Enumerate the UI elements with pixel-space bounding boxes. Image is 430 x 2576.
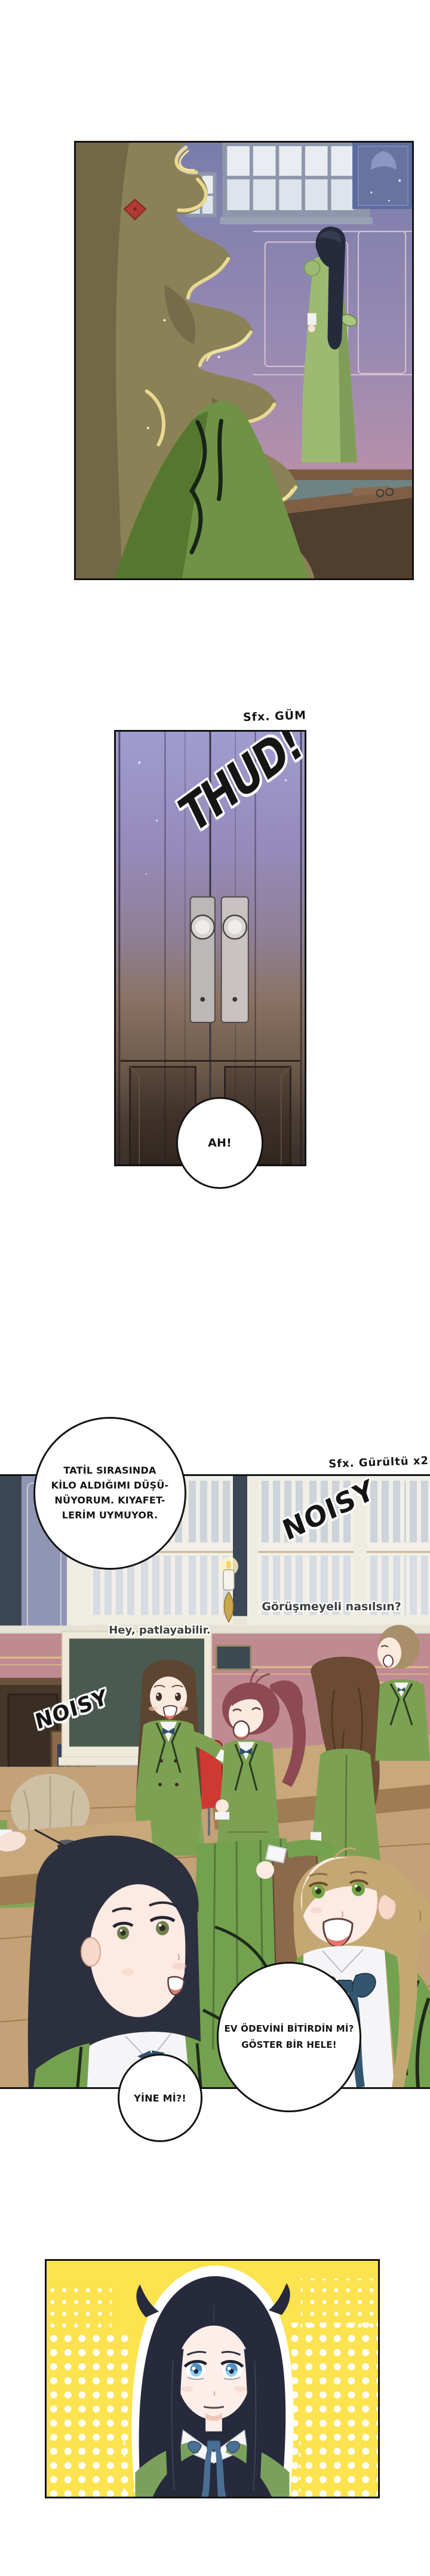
small-wall-board bbox=[216, 1646, 251, 1669]
speech-bubble-yine: YİNE Mİ?! bbox=[118, 2054, 202, 2142]
webtoon-page: Sfx. GÜM bbox=[0, 0, 430, 2576]
sfx-gum-label: Sfx. GÜM bbox=[217, 708, 307, 725]
room-scene-art bbox=[76, 143, 412, 578]
portrait-art bbox=[47, 2261, 378, 2497]
panel-room-scene bbox=[74, 141, 414, 580]
blue-decor-panel bbox=[352, 143, 412, 209]
panel-classroom: NOISY Görüşmeyeli nasılsın? Hey, patlaya… bbox=[0, 1474, 430, 2089]
speech-bubble-odev: EV ÖDEVİNİ BİTİRDİN Mİ? GÖSTER BİR HELE! bbox=[217, 1962, 361, 2112]
speech-bubble-tatil: TATİL SIRASINDA KİLO ALDIĞIMI DÜŞÜ- NÜYO… bbox=[33, 1417, 186, 1570]
bubble-text: AH! bbox=[208, 1136, 232, 1150]
sfx-hey-patlayabilir: Hey, patlayabilir. bbox=[96, 1624, 224, 1637]
bubble-text-line: GÖSTER BİR HELE! bbox=[241, 2037, 337, 2053]
speech-bubble-ah: AH! bbox=[176, 1097, 263, 1189]
bubble-text-line: KİLO ALDIĞIMI DÜŞÜ- bbox=[51, 1478, 169, 1493]
classroom-art bbox=[0, 1476, 430, 2087]
sfx-gorusmeyeli: Görüşmeyeli nasılsın? bbox=[257, 1600, 406, 1613]
bubble-text-line: NÜYORUM. KIYAFET- bbox=[54, 1493, 165, 1508]
panel-portrait bbox=[45, 2259, 380, 2498]
bubble-text-line: EV ÖDEVİNİ BİTİRDİN Mİ? bbox=[224, 2021, 354, 2037]
sfx-gurultu-label: Sfx. Gürültü x2 bbox=[322, 1455, 429, 1471]
bubble-text-line: TATİL SIRASINDA bbox=[63, 1463, 156, 1478]
bubble-text-line: LERİM UYMUYOR. bbox=[62, 1508, 158, 1523]
bubble-text: YİNE Mİ?! bbox=[134, 2093, 186, 2104]
